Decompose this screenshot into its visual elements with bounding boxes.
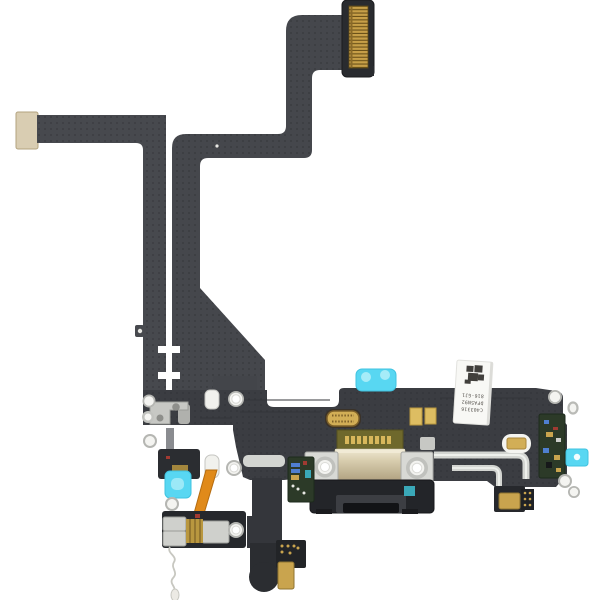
- product-photo: C403316 DFA5N92 816-GJ1: [0, 0, 600, 600]
- lightning-port-opening: [343, 503, 399, 513]
- left-flex-arm: [16, 112, 166, 397]
- flex-cut-slit: [158, 346, 180, 353]
- green-pcb-right: [539, 414, 565, 478]
- upper-left-bracket-cluster: [150, 402, 190, 424]
- label-part-numbers: C403316 DFA5N92 816-GJ1: [461, 391, 484, 412]
- silver-bracket-small: [420, 437, 435, 450]
- antenna-wire: [169, 547, 179, 600]
- flex-cable-photo: C403316 DFA5N92 816-GJ1: [0, 0, 600, 600]
- cyan-pull-tab-right: [566, 449, 588, 466]
- cyan-pull-tab-top: [356, 369, 396, 391]
- gold-pad: [425, 408, 436, 424]
- green-pcb-left: [288, 457, 314, 502]
- gold-pin-grid: [349, 6, 368, 68]
- right-microphone-module: [494, 486, 534, 512]
- right-microphone: [499, 493, 520, 509]
- flex-cut-slit: [158, 372, 180, 379]
- speaker-mic-round: [249, 562, 279, 592]
- gold-test-pad: [502, 434, 531, 453]
- flex-hole: [215, 144, 218, 147]
- upper-flex-ribbon: [172, 15, 347, 397]
- gold-pad: [410, 408, 422, 425]
- tan-stiffener: [16, 112, 38, 149]
- cyan-tab-highlight: [171, 478, 184, 490]
- right-screw-bracket: [401, 452, 433, 484]
- port-housing: [310, 480, 434, 514]
- white-barcode-label: C403316 DFA5N92 816-GJ1: [453, 360, 493, 425]
- teal-component: [404, 486, 415, 496]
- lightning-connector: [335, 449, 405, 482]
- gold-b2b-socket: [325, 409, 361, 428]
- silver-band: [243, 455, 285, 467]
- bottom-microphone: [278, 562, 294, 589]
- top-edge-bump: [213, 376, 257, 392]
- board-to-board-connector: [342, 0, 374, 77]
